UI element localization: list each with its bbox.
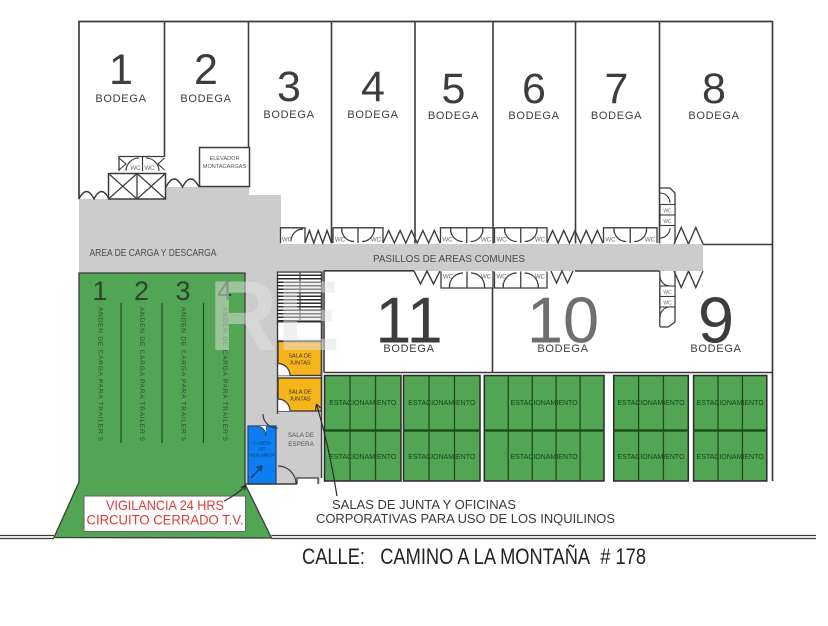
svg-text:WC: WC <box>663 290 672 296</box>
svg-text:BODEGA: BODEGA <box>508 110 559 122</box>
svg-text:ESTACIONAMIENTO: ESTACIONAMIENTO <box>408 454 476 461</box>
svg-text:BODEGA: BODEGA <box>428 110 479 122</box>
svg-text:2: 2 <box>194 46 218 94</box>
svg-text:CIRCUITO CERRADO T.V.: CIRCUITO CERRADO T.V. <box>87 513 244 528</box>
svg-text:WC: WC <box>496 237 507 244</box>
svg-text:WC: WC <box>130 165 141 172</box>
svg-text:WC: WC <box>282 237 293 244</box>
svg-text:SALA DE: SALA DE <box>288 432 314 439</box>
svg-text:ANDEN DE CARGA PARA TRAILER'S: ANDEN DE CARGA PARA TRAILER'S <box>180 307 187 442</box>
svg-text:WC: WC <box>481 237 492 244</box>
svg-text:ESTACIONAMIENTO: ESTACIONAMIENTO <box>511 400 579 407</box>
svg-text:BODEGA: BODEGA <box>347 109 398 121</box>
svg-text:ANDEN DE CARGA PARA TRAILER'S: ANDEN DE CARGA PARA TRAILER'S <box>138 307 145 442</box>
svg-text:BODEGA: BODEGA <box>95 93 146 105</box>
svg-text:WC: WC <box>663 219 672 225</box>
svg-text:WC: WC <box>663 209 672 215</box>
svg-text:WC: WC <box>645 237 656 244</box>
svg-text:5: 5 <box>442 65 466 113</box>
svg-text:ESPERA: ESPERA <box>288 441 314 448</box>
svg-text:WC: WC <box>496 274 507 281</box>
svg-text:WC: WC <box>535 237 546 244</box>
svg-text:AREA DE CARGA Y DESCARGA: AREA DE CARGA Y DESCARGA <box>90 248 217 259</box>
svg-text:JUNTAS: JUNTAS <box>289 397 311 403</box>
svg-text:ANDEN DE CARGA PARA TRAILER'S: ANDEN DE CARGA PARA TRAILER'S <box>97 307 104 442</box>
svg-text:BODEGA: BODEGA <box>537 343 588 355</box>
svg-text:WC: WC <box>144 165 155 172</box>
svg-text:RE: RE <box>209 260 340 371</box>
svg-text:BODEGA: BODEGA <box>690 343 741 355</box>
svg-text:WC: WC <box>442 237 453 244</box>
svg-text:PASILLOS DE AREAS COMUNES: PASILLOS DE AREAS COMUNES <box>373 254 525 265</box>
svg-text:8: 8 <box>702 65 726 113</box>
svg-text:MONTACARGAS: MONTACARGAS <box>203 164 247 170</box>
svg-text:WC: WC <box>371 237 382 244</box>
svg-text:WC: WC <box>443 274 454 281</box>
svg-text:WC: WC <box>535 274 546 281</box>
svg-text:1: 1 <box>92 276 107 306</box>
svg-text:2: 2 <box>134 276 149 306</box>
svg-text:ESTACIONAMIENTO: ESTACIONAMIENTO <box>617 400 685 407</box>
svg-text:ESTACIONAMIENTO: ESTACIONAMIENTO <box>408 400 476 407</box>
svg-text:WC: WC <box>663 301 672 307</box>
svg-text:WC: WC <box>605 237 616 244</box>
svg-text:ESTACIONAMIENTO: ESTACIONAMIENTO <box>697 400 765 407</box>
svg-text:ELEVADOR: ELEVADOR <box>209 156 239 162</box>
svg-text:ESTACIONAMIENTO: ESTACIONAMIENTO <box>617 454 685 461</box>
svg-text:1: 1 <box>109 46 133 94</box>
svg-text:BODEGA: BODEGA <box>263 109 314 121</box>
svg-text:3: 3 <box>277 63 301 111</box>
svg-text:SALAS DE JUNTA Y OFICINAS: SALAS DE JUNTA Y OFICINAS <box>332 497 516 512</box>
svg-text:4: 4 <box>361 63 385 111</box>
svg-text:VIGILANCIA: VIGILANCIA <box>249 453 274 458</box>
svg-text:6: 6 <box>522 65 546 113</box>
svg-text:BODEGA: BODEGA <box>688 110 739 122</box>
svg-text:BODEGA: BODEGA <box>383 343 434 355</box>
svg-text:7: 7 <box>605 65 629 113</box>
svg-text:WC: WC <box>335 237 346 244</box>
svg-text:CALLE: CAMINO A LA MONTAÑA: CALLE: CAMINO A LA MONTAÑA # 178 <box>302 544 646 569</box>
svg-text:ESTACIONAMIENTO: ESTACIONAMIENTO <box>697 454 765 461</box>
svg-text:SALA DE: SALA DE <box>288 390 312 396</box>
svg-text:ESTACIONAMIENTO: ESTACIONAMIENTO <box>329 400 397 407</box>
svg-text:ESTACIONAMIENTO: ESTACIONAMIENTO <box>511 454 579 461</box>
svg-text:DE: DE <box>259 447 265 452</box>
svg-text:CORPORATIVAS PARA USO DE LOS I: CORPORATIVAS PARA USO DE LOS INQUILINOS <box>316 511 615 526</box>
svg-text:ESTACIONAMIENTO: ESTACIONAMIENTO <box>329 454 397 461</box>
svg-text:BODEGA: BODEGA <box>591 110 642 122</box>
svg-text:BODEGA: BODEGA <box>180 93 231 105</box>
svg-text:CASETA: CASETA <box>253 441 271 446</box>
svg-text:3: 3 <box>175 276 190 306</box>
svg-text:WC: WC <box>481 274 492 281</box>
svg-text:VIGILANCIA 24 HRS: VIGILANCIA 24 HRS <box>106 498 224 513</box>
